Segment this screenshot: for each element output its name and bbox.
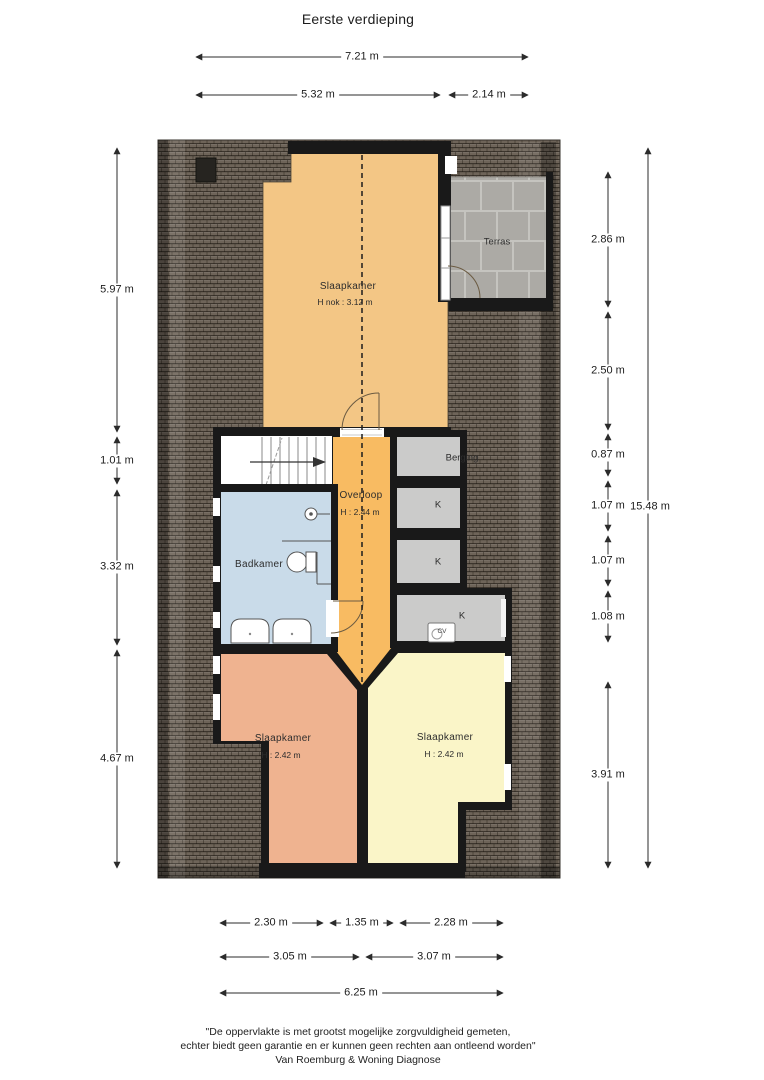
dim-label-right-4: 1.07 m <box>587 500 629 513</box>
dim-label-left-3: 3.32 m <box>96 561 138 574</box>
page-title: Eerste verdieping <box>302 12 414 26</box>
dim-label-bottom-5: 3.07 m <box>413 951 455 964</box>
dim-label-left-1: 5.97 m <box>96 284 138 297</box>
toilet <box>287 552 316 572</box>
dim-label-right-6: 1.08 m <box>587 611 629 624</box>
dim-label-width-right: 2.14 m <box>468 89 510 102</box>
floor-plan-page: Eerste verdieping 7.21 m 5.32 m 2.14 m 5… <box>0 0 764 1080</box>
room-label-slaapkamer-top: Slaapkamer <box>320 282 376 292</box>
dim-label-left-2: 1.01 m <box>96 455 138 468</box>
disclaimer-line-2: echter biedt geen garantie en er kunnen … <box>180 1041 535 1052</box>
room-label-kast-3: K <box>459 611 465 621</box>
dim-label-height-total: 15.48 m <box>626 501 674 514</box>
bottom-outer-wall <box>259 863 465 878</box>
cv-unit-label: CV <box>437 629 446 636</box>
room-label-badkamer: Badkamer <box>235 560 283 570</box>
dim-label-right-1: 2.86 m <box>587 234 629 247</box>
room-height-overloop: H : 2.44 m <box>340 508 379 517</box>
room-height-slaapkamer-left: H : 2.42 m <box>261 751 300 760</box>
room-height-slaapkamer-top: H nok : 3.12 m <box>317 298 372 307</box>
roof-skylight <box>196 158 216 182</box>
dim-label-width-total: 7.21 m <box>341 51 383 64</box>
dim-label-bottom-2: 1.35 m <box>341 917 383 930</box>
dim-label-right-5: 1.07 m <box>587 555 629 568</box>
dim-label-bottom-3: 2.28 m <box>430 917 472 930</box>
room-label-kast-1: K <box>435 500 441 510</box>
dim-label-right-3: 0.87 m <box>587 449 629 462</box>
dim-label-bottom-4: 3.05 m <box>269 951 311 964</box>
room-height-slaapkamer-right: H : 2.42 m <box>424 750 463 759</box>
dim-label-left-4: 4.67 m <box>96 753 138 766</box>
disclaimer-line-1: "De oppervlakte is met grootst mogelijke… <box>206 1027 511 1038</box>
room-label-overloop: Overloop <box>340 491 383 501</box>
dim-label-right-2: 2.50 m <box>587 365 629 378</box>
room-label-berging: Berging <box>446 453 479 463</box>
dim-label-bottom-6: 6.25 m <box>340 987 382 1000</box>
room-label-slaapkamer-right: Slaapkamer <box>417 733 473 743</box>
room-label-terras: Terras <box>484 237 510 247</box>
company-name: Van Roemburg & Woning Diagnose <box>275 1055 440 1066</box>
dim-label-bottom-1: 2.30 m <box>250 917 292 930</box>
dim-label-right-7: 3.91 m <box>587 769 629 782</box>
room-label-slaapkamer-left: Slaapkamer <box>255 734 311 744</box>
dim-label-width-left: 5.32 m <box>297 89 339 102</box>
room-label-kast-2: K <box>435 557 441 567</box>
stairs-area <box>213 430 332 490</box>
